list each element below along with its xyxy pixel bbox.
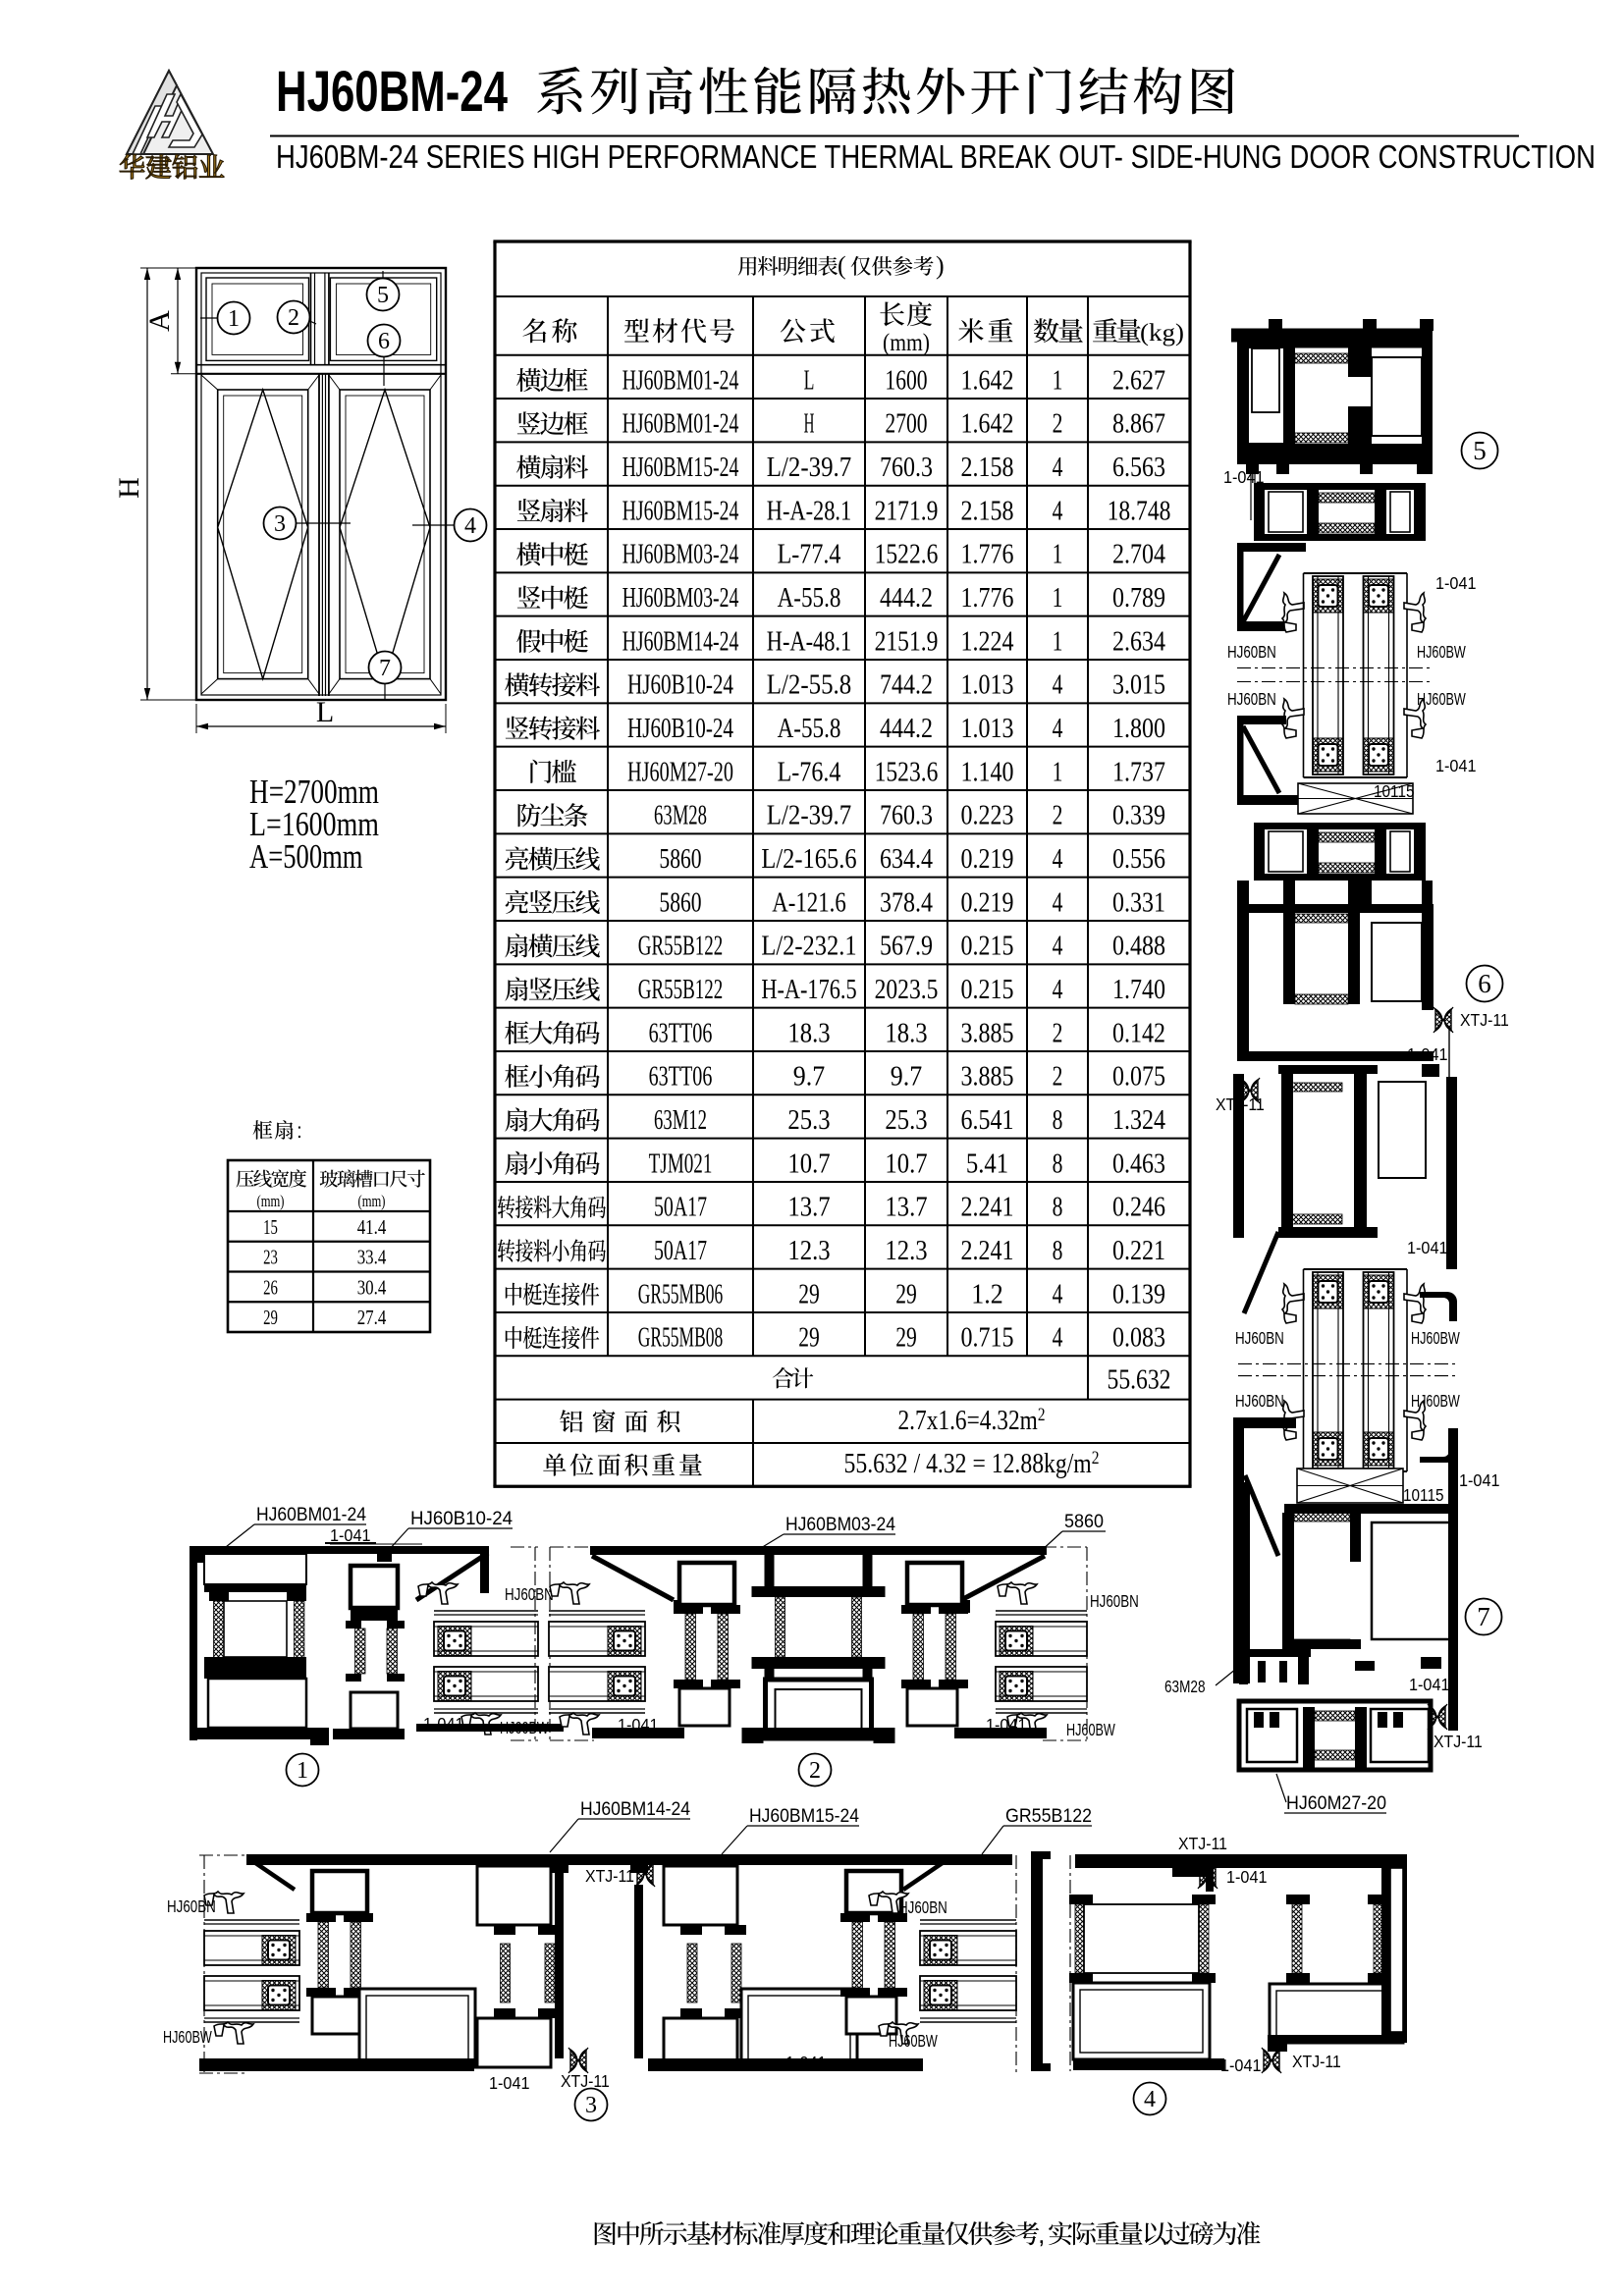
svg-text:10.7: 10.7 <box>885 1148 927 1179</box>
svg-text:HJ60BM15-24: HJ60BM15-24 <box>622 452 739 483</box>
svg-text:6: 6 <box>378 329 390 354</box>
svg-text:HJ60BW: HJ60BW <box>889 2031 938 2051</box>
svg-text:HJ60BM15-24: HJ60BM15-24 <box>749 1806 859 1827</box>
svg-text:0.215: 0.215 <box>961 974 1014 1005</box>
svg-text:2: 2 <box>1053 1061 1063 1093</box>
svg-text:0.215: 0.215 <box>961 931 1014 962</box>
svg-text:63M28: 63M28 <box>1164 1677 1206 1696</box>
svg-text:4: 4 <box>1053 452 1063 483</box>
svg-text:H-A-176.5: H-A-176.5 <box>761 974 856 1005</box>
svg-text:H: H <box>804 408 815 440</box>
svg-text:HJ60B10-24: HJ60B10-24 <box>410 1509 513 1529</box>
svg-text:12.3: 12.3 <box>885 1235 927 1266</box>
svg-text:5: 5 <box>1473 436 1487 465</box>
svg-text:HJ60BW: HJ60BW <box>1066 1720 1115 1739</box>
svg-text:HJ60BM01-24: HJ60BM01-24 <box>256 1505 366 1525</box>
svg-text:2151.9: 2151.9 <box>875 625 939 657</box>
svg-text:GR55B122: GR55B122 <box>638 931 723 962</box>
svg-text:1.013: 1.013 <box>961 669 1014 701</box>
svg-text:(mm): (mm) <box>257 1192 285 1210</box>
svg-text:1.776: 1.776 <box>961 582 1014 614</box>
svg-text:HJ60BM-24 SERIES HIGH PERFORMA: HJ60BM-24 SERIES HIGH PERFORMANCE THERMA… <box>276 138 1596 175</box>
svg-text:L: L <box>804 364 815 396</box>
svg-text:29: 29 <box>895 1278 917 1309</box>
svg-text:2.7x1.6=4.32m2: 2.7x1.6=4.32m2 <box>898 1405 1046 1436</box>
svg-text:HJ60BW: HJ60BW <box>1411 1328 1460 1348</box>
svg-text:,: , <box>1038 2219 1045 2249</box>
svg-text:5860: 5860 <box>659 886 701 918</box>
svg-text:63TT06: 63TT06 <box>649 1017 713 1048</box>
svg-text:7: 7 <box>1477 1602 1490 1631</box>
svg-text:5.41: 5.41 <box>966 1148 1008 1179</box>
svg-text:23: 23 <box>263 1246 278 1269</box>
svg-text:0.246: 0.246 <box>1112 1192 1165 1223</box>
svg-text:0.715: 0.715 <box>961 1322 1014 1354</box>
svg-text:4: 4 <box>1053 713 1063 744</box>
svg-text:1.140: 1.140 <box>961 756 1014 787</box>
svg-text:HJ60BW: HJ60BW <box>163 2027 212 2047</box>
svg-text::: : <box>297 1120 302 1143</box>
svg-text:HJ60BM01-24: HJ60BM01-24 <box>622 408 739 440</box>
svg-text:760.3: 760.3 <box>880 800 933 831</box>
svg-text:1: 1 <box>1053 625 1063 657</box>
svg-text:4: 4 <box>1053 669 1063 701</box>
svg-text:2: 2 <box>809 1758 821 1784</box>
svg-text:10115: 10115 <box>1374 781 1415 801</box>
svg-text:2.241: 2.241 <box>961 1192 1014 1223</box>
svg-text:4: 4 <box>1053 974 1063 1005</box>
svg-text:HJ60BM03-24: HJ60BM03-24 <box>622 582 739 614</box>
svg-text:1.642: 1.642 <box>961 408 1014 440</box>
svg-text:1.740: 1.740 <box>1112 974 1165 1005</box>
svg-text:63TT06: 63TT06 <box>649 1061 713 1093</box>
svg-text:8: 8 <box>1053 1192 1063 1223</box>
svg-text:25.3: 25.3 <box>885 1104 927 1136</box>
svg-text:HJ60BN: HJ60BN <box>505 1584 554 1604</box>
svg-text:HJ60BW: HJ60BW <box>1411 1391 1460 1411</box>
svg-text:HJ60BN: HJ60BN <box>1227 642 1276 662</box>
svg-text:1.324: 1.324 <box>1112 1104 1165 1136</box>
svg-text:1600: 1600 <box>885 364 927 396</box>
svg-text:634.4: 634.4 <box>880 843 933 875</box>
svg-text:63M28: 63M28 <box>654 800 707 831</box>
svg-text:15: 15 <box>263 1215 278 1239</box>
svg-text:50A17: 50A17 <box>654 1192 707 1223</box>
svg-text:378.4: 378.4 <box>880 886 933 918</box>
svg-text:1: 1 <box>297 1758 308 1784</box>
svg-text:HJ60B10-24: HJ60B10-24 <box>627 713 733 744</box>
svg-text:5860: 5860 <box>659 843 701 875</box>
svg-text:L/2-39.7: L/2-39.7 <box>767 800 851 831</box>
svg-text:L-76.4: L-76.4 <box>778 756 841 787</box>
svg-text:(mm): (mm) <box>358 1192 386 1210</box>
svg-text:1-041: 1-041 <box>986 1715 1027 1735</box>
svg-text:6.541: 6.541 <box>961 1104 1014 1136</box>
svg-text:8.867: 8.867 <box>1112 408 1165 440</box>
svg-text:HJ60BN: HJ60BN <box>1090 1591 1139 1611</box>
svg-text:A=500mm: A=500mm <box>249 837 363 876</box>
svg-text:12.3: 12.3 <box>787 1235 830 1266</box>
svg-text:L/2-39.7: L/2-39.7 <box>767 452 851 483</box>
svg-text:HJ60BM15-24: HJ60BM15-24 <box>622 495 739 526</box>
svg-text:8: 8 <box>1053 1148 1063 1179</box>
svg-text:1.642: 1.642 <box>961 364 1014 396</box>
svg-text:): ) <box>936 251 945 280</box>
svg-text:26: 26 <box>263 1275 278 1299</box>
svg-text:GR55B122: GR55B122 <box>638 974 723 1005</box>
svg-text:A-55.8: A-55.8 <box>778 582 841 614</box>
svg-text:TJM021: TJM021 <box>649 1148 713 1179</box>
svg-text:2: 2 <box>1053 408 1063 440</box>
svg-text:HJ60BM03-24: HJ60BM03-24 <box>622 539 739 570</box>
svg-text:0.139: 0.139 <box>1112 1278 1165 1309</box>
svg-text:1: 1 <box>1053 582 1063 614</box>
svg-text:0.221: 0.221 <box>1112 1235 1165 1266</box>
svg-text:0.219: 0.219 <box>961 843 1014 875</box>
svg-text:H: H <box>113 477 145 499</box>
svg-text:1: 1 <box>228 306 240 332</box>
svg-text:0.331: 0.331 <box>1112 886 1165 918</box>
svg-text:HJ60M27-20: HJ60M27-20 <box>627 756 733 787</box>
svg-text:GR55MB08: GR55MB08 <box>638 1322 723 1354</box>
svg-text:1-041: 1-041 <box>1409 1675 1450 1694</box>
svg-text:55.632 / 4.32 = 12.88kg/m2: 55.632 / 4.32 = 12.88kg/m2 <box>844 1448 1100 1479</box>
svg-text:XTJ-11: XTJ-11 <box>1460 1010 1509 1030</box>
svg-text:8: 8 <box>1053 1104 1063 1136</box>
svg-text:HJ60BW: HJ60BW <box>1417 642 1466 662</box>
svg-text:HJ60BM14-24: HJ60BM14-24 <box>580 1799 690 1820</box>
svg-text:XTJ-11: XTJ-11 <box>561 2071 610 2091</box>
svg-text:XTJ-11: XTJ-11 <box>1178 1834 1227 1853</box>
svg-text:XTJ-11: XTJ-11 <box>1292 2052 1341 2071</box>
svg-text:2700: 2700 <box>885 408 927 440</box>
svg-text:444.2: 444.2 <box>880 713 933 744</box>
svg-text:6.563: 6.563 <box>1112 452 1165 483</box>
svg-text:1-041: 1-041 <box>1435 573 1477 593</box>
svg-text:(mm): (mm) <box>883 330 930 356</box>
svg-text:0.219: 0.219 <box>961 886 1014 918</box>
svg-text:2.627: 2.627 <box>1112 364 1165 396</box>
svg-text:L/2-55.8: L/2-55.8 <box>767 669 851 701</box>
svg-text:3: 3 <box>585 2093 597 2118</box>
svg-text:30.4: 30.4 <box>357 1275 387 1299</box>
svg-text:1-041: 1-041 <box>1220 2056 1262 2075</box>
svg-text:1523.6: 1523.6 <box>875 756 939 787</box>
svg-text:2.634: 2.634 <box>1112 625 1165 657</box>
svg-text:L: L <box>316 696 334 728</box>
svg-text:0.556: 0.556 <box>1112 843 1165 875</box>
svg-text:18.3: 18.3 <box>787 1017 830 1048</box>
svg-text:HJ60B10-24: HJ60B10-24 <box>627 669 733 701</box>
svg-text:1.800: 1.800 <box>1112 713 1165 744</box>
svg-text:50A17: 50A17 <box>654 1235 707 1266</box>
svg-text:1522.6: 1522.6 <box>875 539 939 570</box>
svg-text:1-041: 1-041 <box>618 1715 659 1735</box>
svg-text:41.4: 41.4 <box>357 1215 387 1239</box>
svg-text:5: 5 <box>377 283 389 308</box>
svg-text:1-041: 1-041 <box>1226 1867 1268 1887</box>
svg-text:1.224: 1.224 <box>961 625 1014 657</box>
svg-text:1: 1 <box>1053 364 1063 396</box>
svg-text:HJ60BN: HJ60BN <box>1235 1391 1284 1411</box>
svg-text:0.223: 0.223 <box>961 800 1014 831</box>
svg-text:18.748: 18.748 <box>1108 495 1171 526</box>
svg-text:29: 29 <box>798 1322 820 1354</box>
svg-text:760.3: 760.3 <box>880 452 933 483</box>
svg-text:33.4: 33.4 <box>357 1246 387 1269</box>
svg-text:1-041: 1-041 <box>1435 756 1477 775</box>
svg-text:HJ60BM01-24: HJ60BM01-24 <box>622 364 739 396</box>
svg-text:A-55.8: A-55.8 <box>778 713 841 744</box>
svg-text:63M12: 63M12 <box>654 1104 707 1136</box>
svg-text:A-121.6: A-121.6 <box>772 886 846 918</box>
svg-text:29: 29 <box>798 1278 820 1309</box>
svg-text:25.3: 25.3 <box>787 1104 830 1136</box>
svg-text:7: 7 <box>379 656 391 681</box>
svg-text:3: 3 <box>274 511 286 537</box>
svg-text:1-041: 1-041 <box>1459 1470 1500 1490</box>
svg-text:9.7: 9.7 <box>891 1061 922 1093</box>
svg-text:27.4: 27.4 <box>357 1306 387 1329</box>
svg-text:GR55MB06: GR55MB06 <box>638 1278 723 1309</box>
svg-text:567.9: 567.9 <box>880 931 933 962</box>
svg-text:29: 29 <box>895 1322 917 1354</box>
svg-text:55.632: 55.632 <box>1108 1364 1171 1396</box>
svg-text:3.885: 3.885 <box>961 1017 1014 1048</box>
svg-text:4: 4 <box>1053 931 1063 962</box>
svg-text:H-A-48.1: H-A-48.1 <box>767 625 851 657</box>
svg-text:0.339: 0.339 <box>1112 800 1165 831</box>
svg-text:2023.5: 2023.5 <box>875 974 939 1005</box>
svg-text:1.2: 1.2 <box>971 1278 1002 1309</box>
svg-text:XTJ-11: XTJ-11 <box>1434 1732 1483 1751</box>
svg-text:H-A-28.1: H-A-28.1 <box>767 495 851 526</box>
svg-text:1-041: 1-041 <box>785 2053 827 2072</box>
svg-text:444.2: 444.2 <box>880 582 933 614</box>
svg-text:0.488: 0.488 <box>1112 931 1165 962</box>
svg-text:(kg): (kg) <box>1140 320 1184 347</box>
svg-text:4: 4 <box>1053 495 1063 526</box>
svg-text:GR55B122: GR55B122 <box>1005 1806 1092 1827</box>
svg-text:HJ60BN: HJ60BN <box>167 1896 216 1916</box>
svg-text:2171.9: 2171.9 <box>875 495 939 526</box>
svg-text:8: 8 <box>1053 1235 1063 1266</box>
svg-text:13.7: 13.7 <box>885 1192 927 1223</box>
svg-text:0.789: 0.789 <box>1112 582 1165 614</box>
svg-text:0.083: 0.083 <box>1112 1322 1165 1354</box>
svg-text:0.142: 0.142 <box>1112 1017 1165 1048</box>
svg-text:2: 2 <box>1053 800 1063 831</box>
svg-text:13.7: 13.7 <box>787 1192 830 1223</box>
svg-text:2: 2 <box>288 305 299 331</box>
svg-text:4: 4 <box>1053 1322 1063 1354</box>
svg-text:HJ60BN: HJ60BN <box>1227 689 1276 709</box>
svg-text:1-041: 1-041 <box>489 2073 530 2093</box>
svg-text:HJ60BM03-24: HJ60BM03-24 <box>785 1515 895 1535</box>
svg-text:L-77.4: L-77.4 <box>778 539 841 570</box>
svg-text:1-041: 1-041 <box>1407 1238 1448 1257</box>
svg-text:A: A <box>143 310 176 332</box>
svg-text:HJ60BM14-24: HJ60BM14-24 <box>622 625 739 657</box>
svg-text:18.3: 18.3 <box>885 1017 927 1048</box>
svg-text:10.7: 10.7 <box>787 1148 830 1179</box>
svg-text:4: 4 <box>1053 1278 1063 1309</box>
svg-text:4: 4 <box>1144 2087 1156 2112</box>
svg-text:1.776: 1.776 <box>961 539 1014 570</box>
svg-text:HJ60BN: HJ60BN <box>898 1897 947 1917</box>
svg-text:4: 4 <box>1053 886 1063 918</box>
svg-text:HJ60BN: HJ60BN <box>1235 1328 1284 1348</box>
svg-text:9.7: 9.7 <box>793 1061 825 1093</box>
svg-text:744.2: 744.2 <box>880 669 933 701</box>
svg-text:4: 4 <box>464 513 476 539</box>
svg-text:2.241: 2.241 <box>961 1235 1014 1266</box>
svg-text:29: 29 <box>263 1306 278 1329</box>
svg-text:2.158: 2.158 <box>961 495 1014 526</box>
svg-text:L/2-232.1: L/2-232.1 <box>761 931 856 962</box>
svg-text:2.158: 2.158 <box>961 452 1014 483</box>
svg-text:4: 4 <box>1053 843 1063 875</box>
svg-text:1: 1 <box>1053 539 1063 570</box>
svg-text:0.463: 0.463 <box>1112 1148 1165 1179</box>
svg-text:5860: 5860 <box>1064 1512 1104 1532</box>
svg-text:2.704: 2.704 <box>1112 539 1165 570</box>
svg-text:0.075: 0.075 <box>1112 1061 1165 1093</box>
svg-text:1: 1 <box>1053 756 1063 787</box>
svg-text:3.885: 3.885 <box>961 1061 1014 1093</box>
svg-text:(: ( <box>838 251 846 280</box>
svg-text:XTJ-11: XTJ-11 <box>585 1866 634 1886</box>
svg-text:3.015: 3.015 <box>1112 669 1165 701</box>
svg-text:L/2-165.6: L/2-165.6 <box>761 843 856 875</box>
svg-text:2: 2 <box>1053 1017 1063 1048</box>
svg-text:6: 6 <box>1478 969 1491 998</box>
svg-text:HJ60BM-24: HJ60BM-24 <box>276 60 508 124</box>
svg-text:1-041: 1-041 <box>1407 1044 1448 1064</box>
svg-text:HJ60M27-20: HJ60M27-20 <box>1286 1793 1386 1814</box>
svg-text:1.013: 1.013 <box>961 713 1014 744</box>
svg-text:10115: 10115 <box>1403 1485 1444 1505</box>
svg-text:1.737: 1.737 <box>1112 756 1165 787</box>
